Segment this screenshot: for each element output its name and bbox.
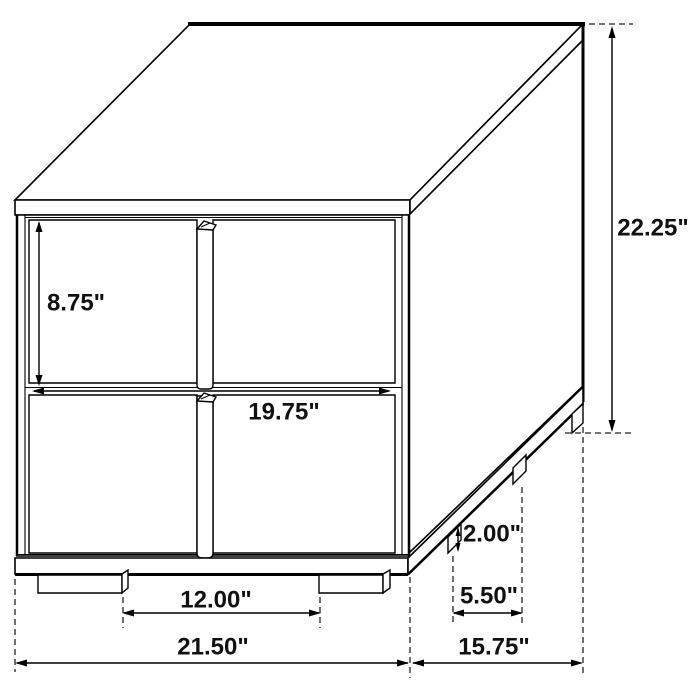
arrow-left-icon [412, 660, 424, 667]
dimension-drawer-height-label: 8.75" [47, 290, 105, 317]
leg-front-left-side [122, 570, 128, 593]
dimension-leg-height: 2.00" [456, 521, 522, 553]
dimension-leg-gap-side-label: 5.50" [460, 583, 518, 610]
dimension-leg-height-label: 2.00" [463, 521, 521, 548]
drawer-front-upper-right [213, 220, 395, 383]
handle-upper-bar [197, 228, 213, 389]
arrow-down-icon [609, 420, 616, 432]
dimension-leg-gap-front-label: 12.00" [180, 587, 251, 614]
dimension-overall-depth-label: 15.75" [458, 634, 529, 661]
arrow-right-icon [309, 610, 321, 617]
dimension-leg-gap-front: 12.00" [122, 587, 321, 629]
arrow-left-icon [15, 660, 27, 667]
leg-front-left-face [38, 575, 122, 593]
dimension-overall-height-label: 22.25" [617, 215, 688, 242]
base-front [15, 558, 408, 574]
arrow-down-icon [456, 543, 461, 552]
arrow-right-icon [397, 660, 409, 667]
dimension-diagram-canvas: 8.75" 22.25" 19.75" 12.00" 21.50" [0, 0, 700, 700]
leg-front-right-face [319, 575, 383, 593]
nightstand-dimension-diagram: 8.75" 22.25" 19.75" 12.00" 21.50" [0, 0, 700, 700]
drawer-handle-upper [197, 221, 216, 389]
drawer-handle-lower [197, 393, 216, 558]
dimension-overall-width-label: 21.50" [177, 634, 248, 661]
leg-front-right-side [383, 570, 390, 593]
arrow-left-icon [122, 610, 134, 617]
drawer-front-lower-left [29, 395, 197, 553]
dimension-drawer-width-label: 19.75" [248, 399, 319, 426]
arrow-left-icon [452, 610, 464, 617]
arrow-right-icon [571, 660, 583, 667]
handle-lower-bar [197, 396, 213, 558]
arrow-right-icon [511, 610, 523, 617]
top-slab-front [15, 200, 410, 215]
arrow-up-icon [609, 26, 616, 38]
